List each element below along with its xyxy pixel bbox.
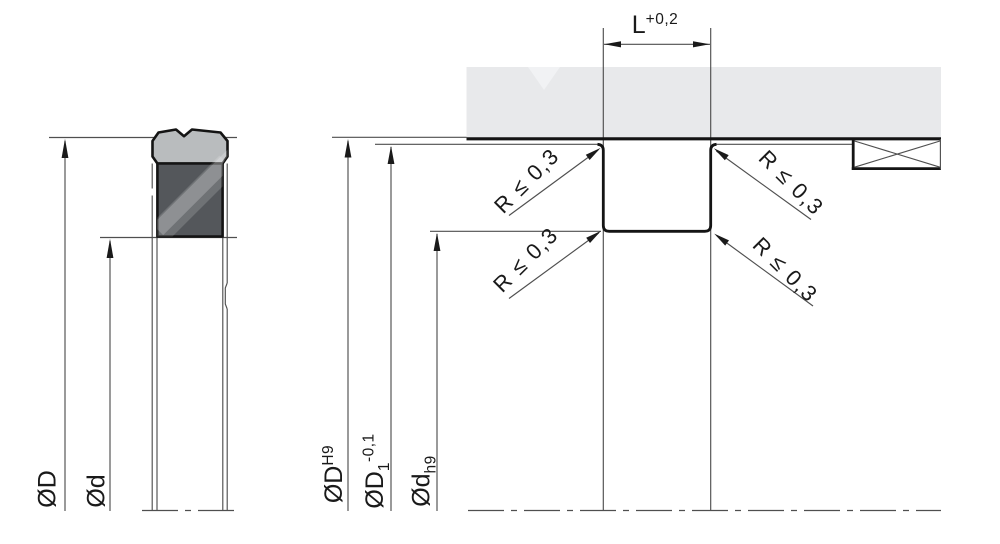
- outer-diameter-label: ØD: [36, 470, 61, 508]
- dimension-arrow-up: [345, 139, 352, 158]
- groove-width-base: L: [632, 11, 646, 39]
- dimension-arrow-up: [107, 239, 114, 258]
- leader-arrow: [586, 231, 601, 243]
- dimension-arrow-up: [434, 233, 441, 251]
- counterbore-diameter-index: 1: [376, 462, 393, 471]
- dimension-arrow-right: [693, 41, 710, 47]
- leader-arrow: [714, 234, 729, 246]
- dimension-arrow-up: [388, 146, 395, 164]
- section-break-box: [852, 139, 941, 170]
- bore-diameter-fit: H9: [320, 445, 337, 466]
- counterbore-diameter-tolerance: -0,1: [361, 433, 378, 462]
- bore-wall-right-jog: [225, 283, 227, 309]
- inner-diameter-label: Ød: [85, 474, 110, 507]
- seal-cap-profile: [153, 130, 228, 164]
- outer-diameter-text: ØD: [34, 470, 62, 508]
- groove-width-label: L+0,2: [632, 12, 679, 38]
- rod-diameter-fit: h9: [422, 455, 439, 473]
- installation-groove-view: [332, 28, 941, 511]
- dimension-arrow-left: [604, 41, 621, 47]
- counterbore-diameter-label: ØD1-0,1: [362, 433, 393, 508]
- rod-diameter-base: Ød: [407, 473, 435, 506]
- outer-diameter-dimension: [62, 139, 69, 511]
- bore-diameter-base: ØD: [320, 466, 348, 504]
- rod-diameter-label: Ødh9: [409, 455, 439, 507]
- groove-outline: [598, 144, 717, 231]
- counterbore-diameter-base: ØD: [361, 471, 389, 509]
- seal-cross-section-view: [49, 126, 262, 511]
- dimension-arrow-up: [62, 139, 69, 158]
- groove-width-dimension: [604, 41, 710, 47]
- groove-width-tolerance: +0,2: [646, 11, 679, 28]
- leader-arrow: [586, 148, 601, 160]
- bore-diameter-label: ØDH9: [321, 445, 347, 503]
- inner-diameter-dimension: [107, 239, 114, 511]
- technical-drawing-page: ØD Ød L+0,2 ØDH9 ØD1-0,1 Ødh9 R ≤ 0,3 R …: [0, 0, 1000, 544]
- inner-diameter-text: Ød: [83, 474, 111, 507]
